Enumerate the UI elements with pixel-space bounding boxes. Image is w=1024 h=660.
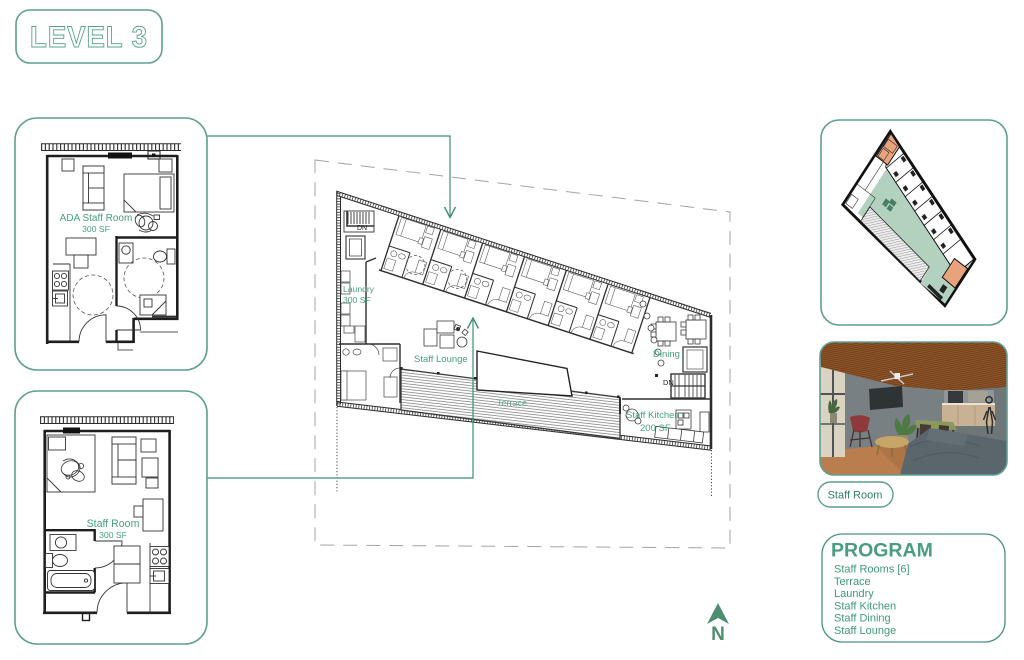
svg-text:300 SF: 300 SF — [343, 295, 371, 305]
svg-text:PROGRAM: PROGRAM — [831, 540, 933, 562]
svg-text:DN: DN — [663, 378, 674, 387]
svg-text:Staff Kitchen: Staff Kitchen — [626, 410, 680, 421]
svg-text:Staff Room: Staff Room — [828, 490, 883, 502]
svg-text:Staff Lounge: Staff Lounge — [834, 625, 896, 637]
svg-text:Laundry: Laundry — [343, 284, 375, 294]
svg-text:N: N — [711, 624, 725, 645]
svg-text:Staff Room: Staff Room — [87, 518, 140, 530]
svg-text:Staff Rooms [6]: Staff Rooms [6] — [834, 564, 910, 576]
svg-text:200 SF: 200 SF — [640, 423, 671, 434]
svg-text:Staff Lounge: Staff Lounge — [414, 354, 468, 365]
svg-text:300 SF: 300 SF — [82, 224, 110, 234]
svg-text:Dining: Dining — [653, 349, 680, 360]
svg-text:ADA Staff Room: ADA Staff Room — [60, 213, 133, 224]
svg-text:Staff Dining: Staff Dining — [834, 613, 891, 625]
svg-text:Terrace: Terrace — [497, 398, 527, 408]
svg-text:LEVEL 3: LEVEL 3 — [30, 21, 148, 54]
svg-text:DN: DN — [357, 225, 367, 232]
svg-text:Staff Kitchen: Staff Kitchen — [834, 600, 896, 612]
svg-text:Terrace: Terrace — [834, 576, 871, 588]
svg-text:300 SF: 300 SF — [99, 530, 127, 540]
svg-text:Laundry: Laundry — [834, 588, 874, 600]
